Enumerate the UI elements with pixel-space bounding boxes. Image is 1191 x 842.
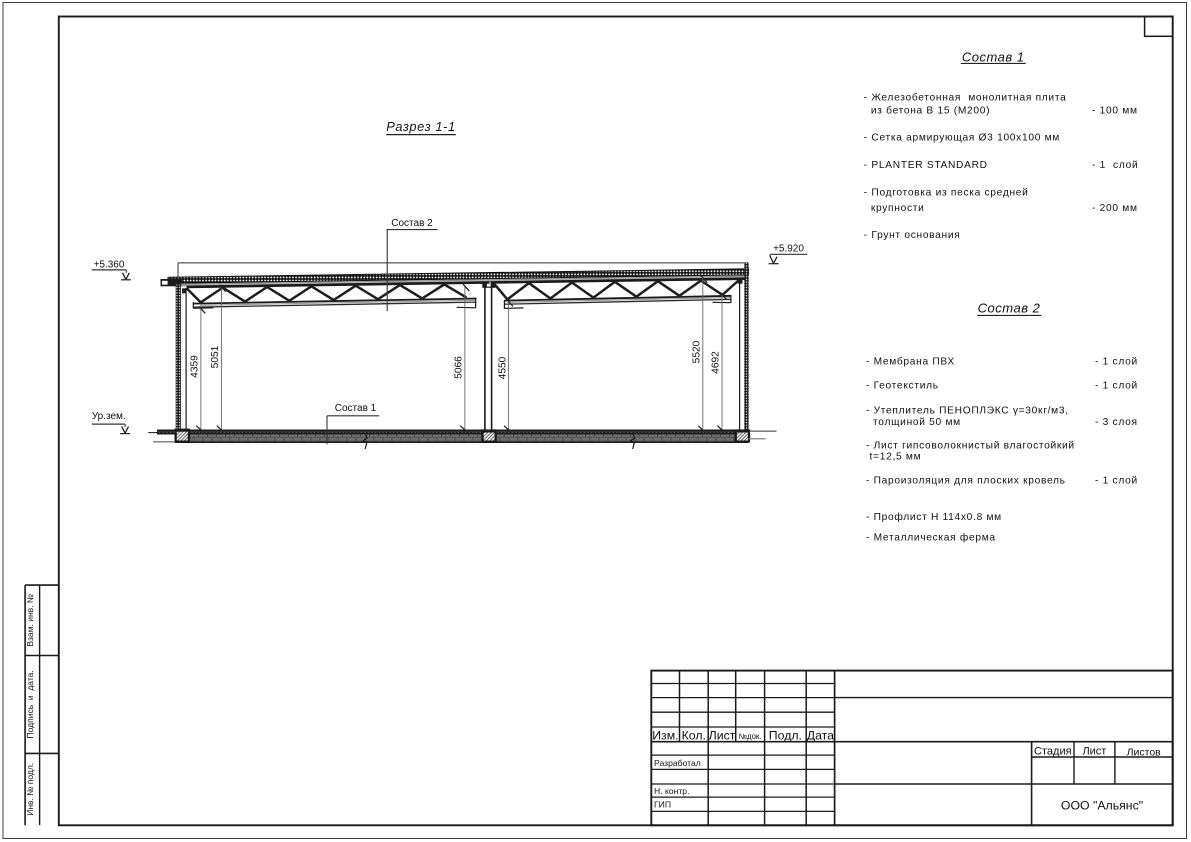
svg-text:5051: 5051 xyxy=(210,345,221,368)
svg-text:+5.920: +5.920 xyxy=(773,243,804,254)
svg-text:Состав 2: Состав 2 xyxy=(978,301,1041,316)
svg-text:t=12,5 мм: t=12,5 мм xyxy=(866,452,921,463)
svg-text:Состав 1: Состав 1 xyxy=(962,50,1025,65)
svg-text:Лист: Лист xyxy=(709,728,736,742)
svg-text:Состав 2: Состав 2 xyxy=(391,218,433,229)
svg-text:- 1 слой: - 1 слой xyxy=(1095,357,1138,368)
svg-text:Кол.: Кол. xyxy=(682,728,706,742)
svg-text:4692: 4692 xyxy=(711,351,722,374)
svg-text:Лист: Лист xyxy=(1082,745,1106,757)
svg-text:- 1 слой: - 1 слой xyxy=(1092,160,1138,171)
svg-text:ГИП: ГИП xyxy=(654,800,671,810)
svg-text:- Сетка армирующая Ø3 100х100: - Сетка армирующая Ø3 100х100 мм xyxy=(864,133,1060,144)
svg-text:- 1 слой: - 1 слой xyxy=(1095,476,1138,487)
svg-text:Разрез 1-1: Разрез 1-1 xyxy=(386,119,455,134)
svg-text:Взам. инв. №: Взам. инв. № xyxy=(25,594,35,647)
svg-text:- 3 слоя: - 3 слоя xyxy=(1095,417,1138,428)
svg-text:Стадия: Стадия xyxy=(1034,745,1072,757)
svg-text:толщиной 50 мм: толщиной 50 мм xyxy=(866,417,961,428)
svg-text:- PLANTER STANDARD: - PLANTER STANDARD xyxy=(864,160,988,171)
svg-text:- Подготовка из песка средней: - Подготовка из песка средней xyxy=(864,187,1029,198)
svg-text:4550: 4550 xyxy=(497,356,508,379)
svg-text:- Железобетонная монолитная п: - Железобетонная монолитная плита xyxy=(864,91,1067,103)
svg-text:- Грунт основания: - Грунт основания xyxy=(864,230,961,241)
svg-text:+5.360: +5.360 xyxy=(94,259,125,270)
svg-text:5066: 5066 xyxy=(454,356,465,379)
svg-text:Состав 1: Состав 1 xyxy=(335,403,377,414)
svg-text:- Пароизоляция для плоских кро: - Пароизоляция для плоских кровель xyxy=(866,476,1066,487)
svg-text:5520: 5520 xyxy=(692,340,703,363)
svg-text:- Лист гипсоволокнистый влагос: - Лист гипсоволокнистый влагостойкий xyxy=(866,441,1075,452)
svg-text:- Мембрана ПВХ: - Мембрана ПВХ xyxy=(866,356,955,368)
svg-text:- Геотекстиль: - Геотекстиль xyxy=(866,381,939,392)
svg-text:4359: 4359 xyxy=(190,355,201,378)
svg-text:- Утеплитель ПЕНОПЛЭКС γ=30кг/: - Утеплитель ПЕНОПЛЭКС γ=30кг/м3, xyxy=(866,405,1069,416)
svg-text:Подл.: Подл. xyxy=(769,728,802,742)
svg-text:- 1 слой: - 1 слой xyxy=(1095,381,1138,392)
svg-text:- 200 мм: - 200 мм xyxy=(1092,203,1138,214)
svg-text:- Профлист Н 114х0.8 мм: - Профлист Н 114х0.8 мм xyxy=(866,511,1002,523)
svg-text:Инв. № подл.: Инв. № подл. xyxy=(25,763,35,816)
svg-text:Листов: Листов xyxy=(1127,747,1162,759)
svg-text:из бетона В 15 (М200): из бетона В 15 (М200) xyxy=(864,105,990,117)
svg-text:Дата: Дата xyxy=(807,728,834,742)
svg-text:ООО "Альянс": ООО "Альянс" xyxy=(1061,799,1143,813)
svg-text:Н. контр.: Н. контр. xyxy=(654,786,689,796)
svg-text:крупности: крупности xyxy=(864,203,925,214)
svg-text:- 100 мм: - 100 мм xyxy=(1092,106,1138,117)
svg-text:Ур.зем.: Ур.зем. xyxy=(92,411,126,422)
svg-text:Разработал: Разработал xyxy=(654,758,701,768)
svg-text:Изм.: Изм. xyxy=(652,728,678,742)
svg-text:Подпись и дата.: Подпись и дата. xyxy=(25,670,35,738)
svg-text:№док.: №док. xyxy=(739,732,762,741)
svg-text:- Металлическая ферма: - Металлическая ферма xyxy=(866,532,996,544)
